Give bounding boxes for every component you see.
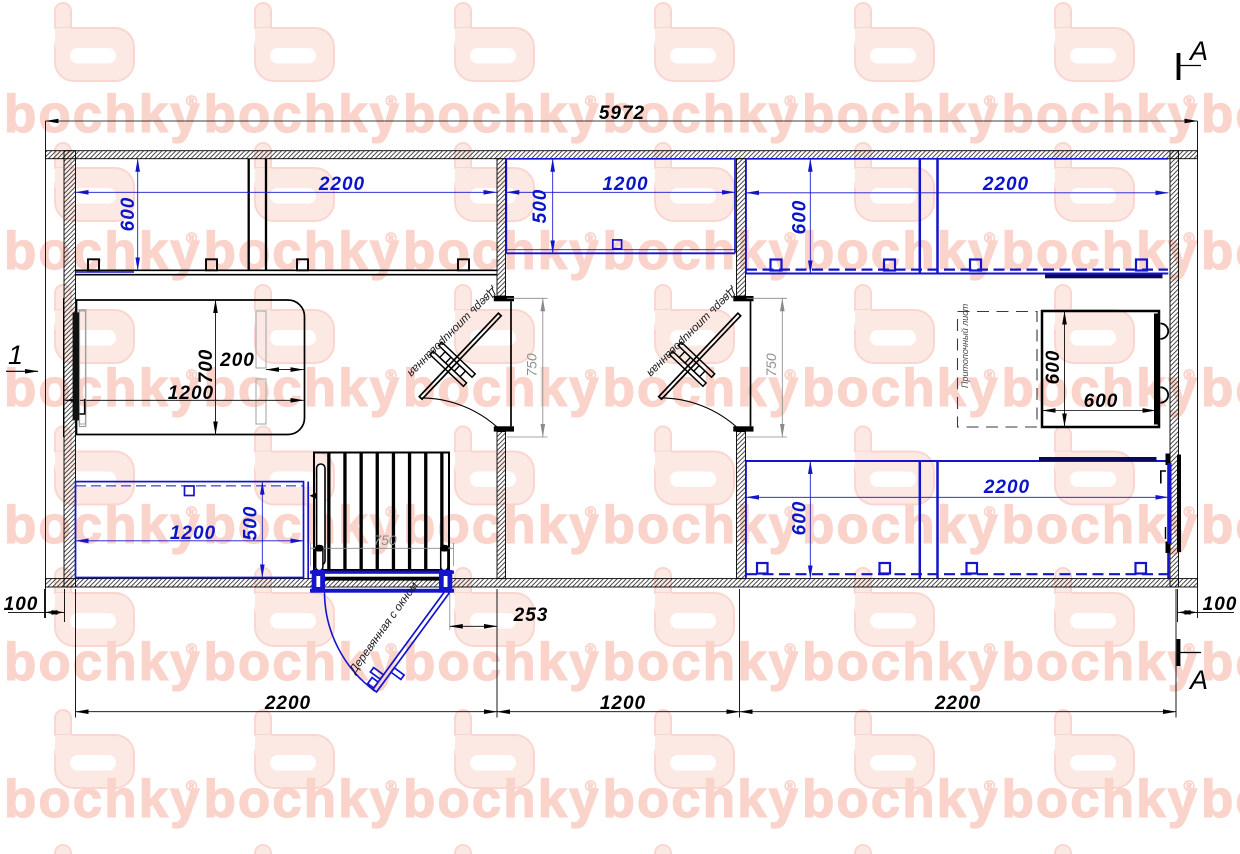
svg-text:®: ® (585, 367, 596, 384)
svg-text:®: ® (785, 641, 796, 658)
svg-text:600: 600 (790, 501, 811, 536)
svg-text:®: ® (585, 504, 596, 521)
svg-text:®: ® (1184, 778, 1195, 795)
svg-text:2200: 2200 (982, 174, 1029, 195)
svg-text:750: 750 (763, 353, 779, 377)
svg-text:bochky: bochky (1002, 85, 1200, 144)
svg-text:A: A (1188, 665, 1208, 695)
svg-text:253: 253 (513, 605, 549, 626)
svg-text:®: ® (186, 504, 197, 521)
svg-text:1200: 1200 (168, 383, 214, 404)
svg-text:®: ® (984, 641, 995, 658)
svg-text:®: ® (585, 778, 596, 795)
svg-text:®: ® (1184, 504, 1195, 521)
svg-text:®: ® (1184, 641, 1195, 658)
svg-text:bochky: bochky (802, 85, 1000, 144)
svg-text:750: 750 (373, 532, 397, 548)
svg-text:bochky: bochky (4, 633, 202, 692)
svg-text:600: 600 (1043, 350, 1064, 385)
svg-text:bochky: bochky (603, 770, 801, 829)
svg-text:®: ® (785, 367, 796, 384)
svg-text:®: ® (386, 778, 397, 795)
svg-text:®: ® (386, 367, 397, 384)
svg-text:®: ® (984, 93, 995, 110)
svg-text:bochky: bochky (403, 770, 601, 829)
svg-text:bochky: bochky (802, 496, 1000, 555)
svg-text:bochky: bochky (403, 85, 601, 144)
svg-text:bochky: bochky (1201, 85, 1240, 144)
svg-text:®: ® (785, 93, 796, 110)
svg-text:bochky: bochky (204, 222, 402, 281)
svg-text:®: ® (585, 93, 596, 110)
svg-text:bochky: bochky (603, 633, 801, 692)
svg-text:bochky: bochky (1201, 359, 1240, 418)
svg-text:bochky: bochky (1002, 222, 1200, 281)
svg-text:bochky: bochky (4, 85, 202, 144)
svg-text:®: ® (386, 93, 397, 110)
svg-text:bochky: bochky (603, 222, 801, 281)
svg-text:700: 700 (196, 349, 217, 384)
svg-text:®: ® (186, 778, 197, 795)
svg-text:®: ® (585, 641, 596, 658)
svg-text:2200: 2200 (934, 693, 981, 714)
svg-text:bochky: bochky (1201, 770, 1240, 829)
svg-text:bochky: bochky (1201, 222, 1240, 281)
svg-text:®: ® (1184, 93, 1195, 110)
svg-text:2200: 2200 (318, 174, 365, 195)
svg-text:200: 200 (219, 350, 255, 371)
svg-text:bochky: bochky (802, 633, 1000, 692)
svg-text:600: 600 (1084, 391, 1119, 412)
svg-text:bochky: bochky (1002, 633, 1200, 692)
svg-text:®: ® (186, 93, 197, 110)
svg-text:bochky: bochky (1201, 496, 1240, 555)
svg-text:1200: 1200 (602, 174, 648, 195)
svg-text:®: ® (1184, 230, 1195, 247)
svg-text:bochky: bochky (403, 633, 601, 692)
svg-text:®: ® (186, 641, 197, 658)
svg-text:bochky: bochky (204, 496, 402, 555)
svg-text:2200: 2200 (264, 693, 311, 714)
svg-text:®: ® (386, 230, 397, 247)
svg-text:bochky: bochky (802, 770, 1000, 829)
svg-text:500: 500 (530, 189, 551, 224)
svg-text:bochky: bochky (1002, 770, 1200, 829)
svg-text:bochky: bochky (204, 85, 402, 144)
svg-text:1: 1 (8, 340, 23, 370)
svg-text:600: 600 (790, 200, 811, 235)
svg-text:1200: 1200 (170, 523, 216, 544)
svg-text:®: ® (386, 641, 397, 658)
svg-text:®: ® (785, 778, 796, 795)
svg-text:®: ® (984, 504, 995, 521)
svg-text:bochky: bochky (204, 770, 402, 829)
svg-text:®: ® (186, 230, 197, 247)
svg-text:®: ® (585, 230, 596, 247)
svg-text:®: ® (984, 230, 995, 247)
svg-text:Притопочный лист: Притопочный лист (960, 303, 970, 388)
svg-text:1200: 1200 (600, 693, 646, 714)
svg-text:500: 500 (241, 506, 262, 541)
svg-text:100: 100 (1203, 594, 1238, 615)
svg-text:bochky: bochky (4, 770, 202, 829)
svg-text:bochky: bochky (802, 222, 1000, 281)
svg-text:A: A (1188, 36, 1208, 66)
svg-text:750: 750 (524, 353, 540, 377)
svg-text:®: ® (984, 367, 995, 384)
svg-text:600: 600 (118, 197, 139, 232)
svg-text:bochky: bochky (603, 496, 801, 555)
svg-text:®: ® (1184, 367, 1195, 384)
svg-text:5972: 5972 (599, 103, 645, 124)
svg-text:2200: 2200 (983, 477, 1030, 498)
svg-text:100: 100 (4, 594, 39, 615)
svg-text:®: ® (984, 778, 995, 795)
